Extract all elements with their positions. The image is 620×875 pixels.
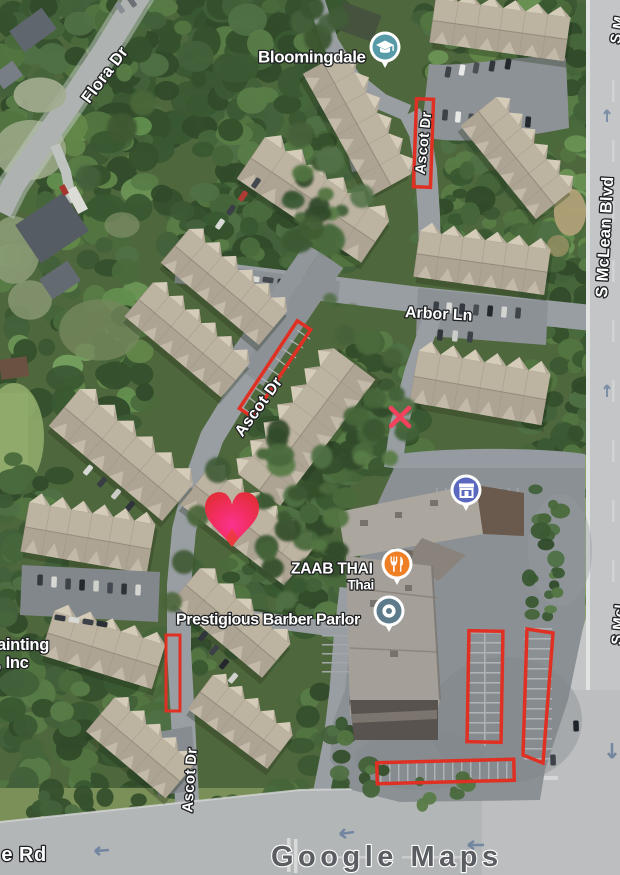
svg-text:Bloomingdale: Bloomingdale	[258, 48, 366, 67]
svg-text:Google Maps: Google Maps	[271, 841, 503, 873]
svg-text:Thai: Thai	[347, 578, 374, 593]
svg-text:Prestigious Barber Parlor: Prestigious Barber Parlor	[176, 612, 360, 629]
svg-text:Arbor Ln: Arbor Ln	[405, 304, 473, 325]
svg-text:e Rd: e Rd	[1, 844, 46, 866]
svg-text:ZAAB THAI: ZAAB THAI	[291, 561, 373, 578]
svg-text:ainting: ainting	[0, 636, 49, 654]
svg-text:, Inc: , Inc	[0, 654, 29, 672]
